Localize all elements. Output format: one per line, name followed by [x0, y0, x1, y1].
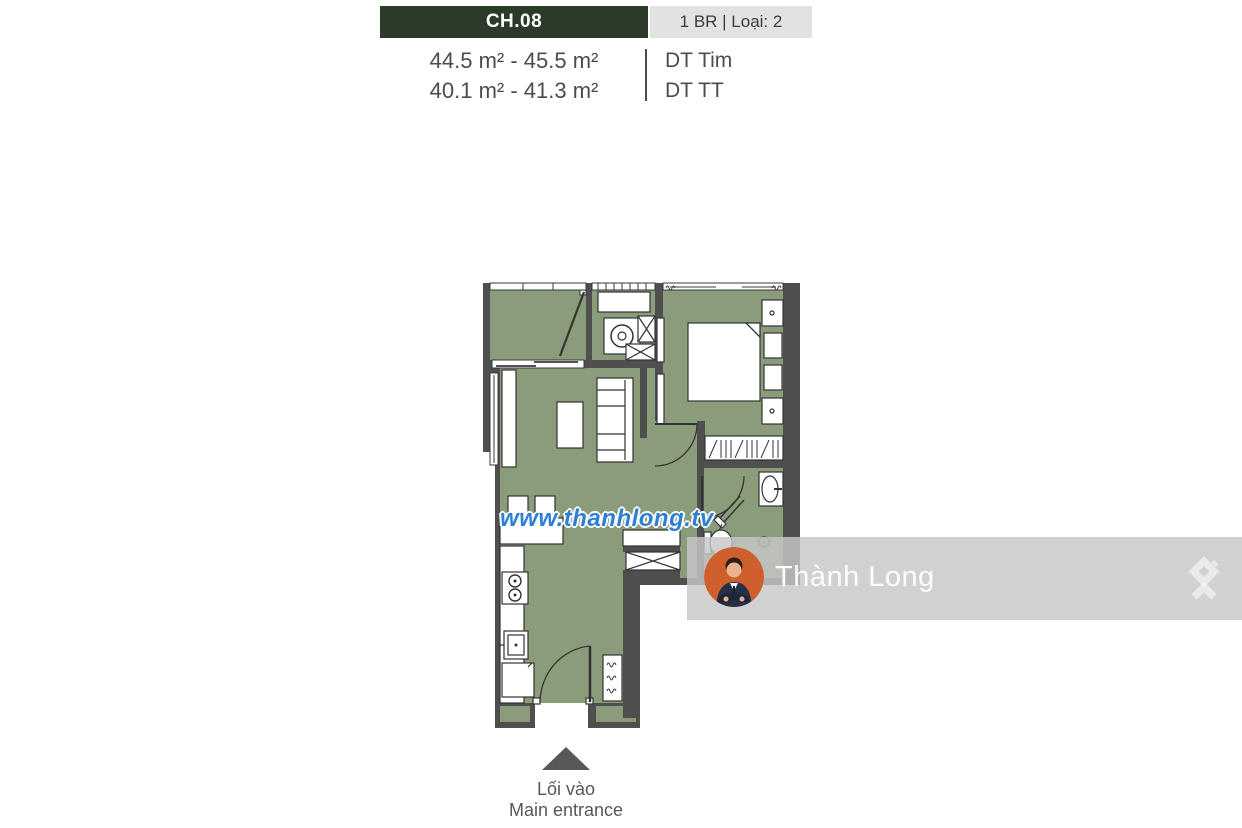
agent-avatar	[704, 547, 764, 607]
coffee-table	[557, 402, 583, 448]
entrance-labels: Lối vào Main entrance	[466, 779, 666, 821]
tv-cabinet	[502, 370, 516, 467]
area-tim-value: 44.5 m² - 45.5 m²	[380, 46, 648, 76]
area-labels: DT Tim DT TT	[665, 46, 732, 106]
refrigerator	[502, 663, 534, 697]
stacked-chevron-home-icon	[1184, 549, 1224, 605]
agent-avatar-image	[704, 547, 764, 607]
shoe-cabinet	[603, 655, 622, 701]
bedroom-panel	[657, 374, 664, 424]
ac-unit-small	[638, 316, 655, 342]
area-values: 44.5 m² - 45.5 m² 40.1 m² - 41.3 m²	[380, 46, 648, 106]
avatar-head	[727, 563, 742, 578]
area-tt-value: 40.1 m² - 41.3 m²	[380, 76, 648, 106]
balcony-window	[490, 283, 586, 290]
stove	[502, 572, 528, 604]
entrance-label-en: Main entrance	[466, 800, 666, 821]
entrance-label-vi: Lối vào	[466, 779, 666, 800]
area-divider-line	[645, 49, 647, 101]
pillow	[764, 365, 782, 390]
nightstand	[762, 398, 783, 424]
agent-name: Thành Long	[775, 561, 935, 594]
entrance-arrow-icon	[542, 747, 590, 770]
wardrobe	[705, 436, 783, 460]
vanity-sink	[759, 472, 783, 506]
bedroom-panel	[657, 318, 664, 362]
double-bed	[688, 323, 760, 401]
ac-unit-lower	[626, 344, 655, 360]
ac-unit-large	[626, 552, 680, 570]
unit-code-badge: CH.08	[380, 6, 648, 38]
laundry-shelf	[598, 292, 650, 312]
watermark-text: www.thanhlong.tv	[500, 505, 714, 533]
laundry-room	[598, 292, 655, 360]
sofa	[597, 378, 633, 462]
nightstand	[762, 300, 783, 326]
area-tim-label: DT Tim	[665, 46, 732, 76]
unit-type-badge: 1 BR | Loại: 2	[650, 6, 812, 38]
area-tt-label: DT TT	[665, 76, 732, 106]
pillow	[764, 333, 782, 358]
agent-banner: Thành Long	[687, 537, 1242, 620]
entry-sill-left	[500, 706, 530, 722]
